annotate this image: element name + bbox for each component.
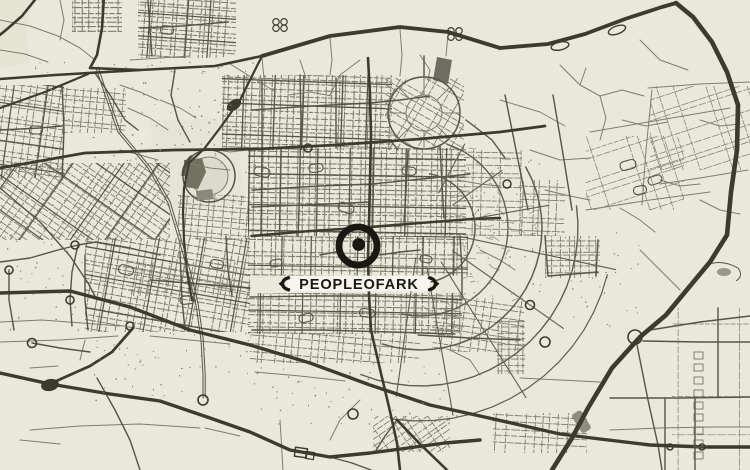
svg-text:PEOPLEOFARK: PEOPLEOFARK [299, 277, 419, 293]
